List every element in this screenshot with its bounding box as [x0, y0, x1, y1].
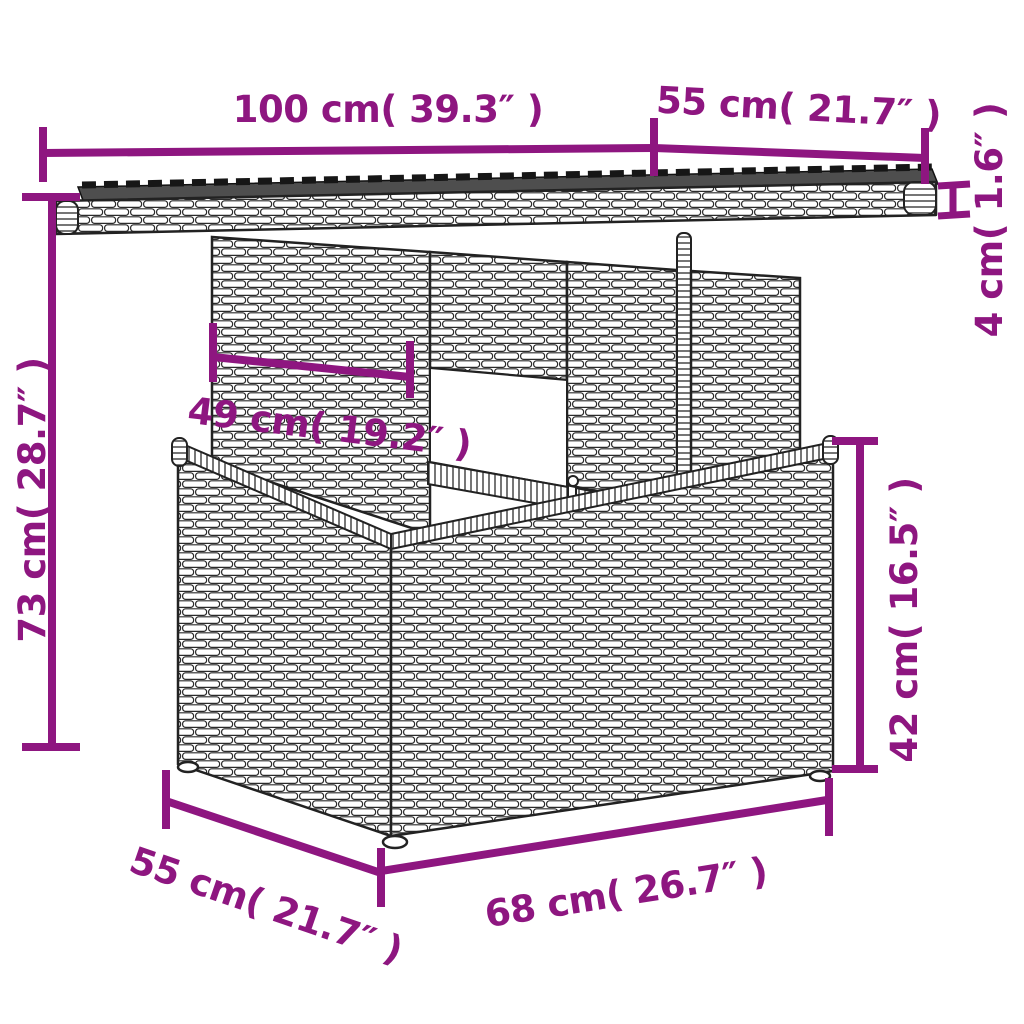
dim-line-top-width	[43, 148, 654, 153]
table-top	[56, 167, 938, 234]
label-total-height: 73 cm( 28.7″ )	[11, 357, 54, 642]
label-top-width: 100 cm( 39.3″ )	[233, 88, 544, 131]
foot-front	[383, 836, 407, 848]
pedestal-divider-post	[677, 233, 691, 508]
label-base-height: 42 cm( 16.5″ )	[883, 477, 926, 762]
table-drawing	[56, 167, 938, 848]
label-base-depth: 55 cm( 21.7″ )	[124, 838, 408, 972]
dim-thickness-marker	[938, 184, 970, 216]
pedestal-right-column	[691, 271, 800, 476]
base-right-face	[391, 449, 833, 836]
diagram-canvas: 100 cm( 39.3″ ) 55 cm( 21.7″ ) 4 cm( 1.6…	[0, 0, 1024, 1024]
tabletop-right-cap	[904, 182, 936, 215]
shelf-connector	[568, 476, 578, 486]
tabletop-left-cap	[56, 201, 78, 234]
pedestal-top-beam	[430, 252, 567, 380]
foot-left	[178, 762, 198, 772]
label-top-depth: 55 cm( 21.7″ )	[655, 79, 942, 137]
label-top-thickness: 4 cm( 1.6″ )	[968, 103, 1011, 338]
dim-line-top-depth	[654, 148, 925, 158]
pedestal-mid-column	[567, 262, 677, 508]
base-corner-post-left	[172, 438, 187, 466]
label-base-width: 68 cm( 26.7″ )	[482, 849, 770, 936]
dimension-diagram: 100 cm( 39.3″ ) 55 cm( 21.7″ ) 4 cm( 1.6…	[0, 0, 1024, 1024]
